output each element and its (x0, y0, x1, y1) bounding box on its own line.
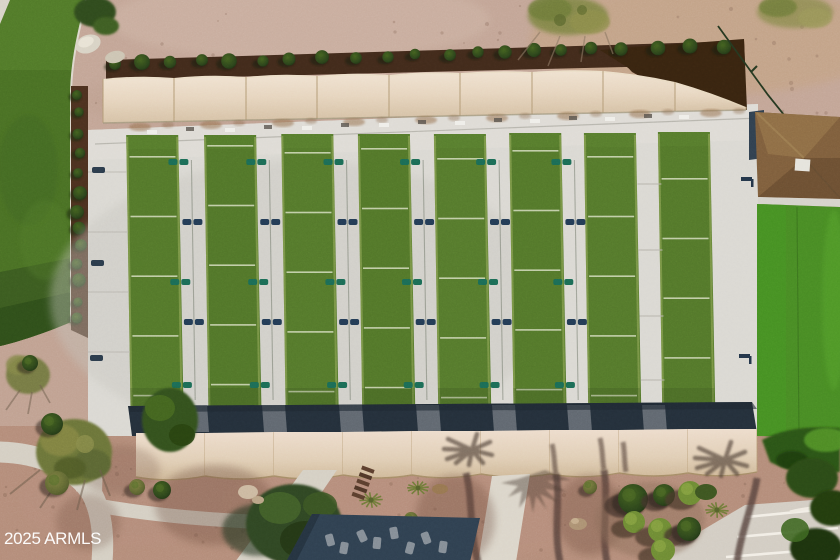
svg-text:2025 ARMLS: 2025 ARMLS (4, 529, 101, 548)
